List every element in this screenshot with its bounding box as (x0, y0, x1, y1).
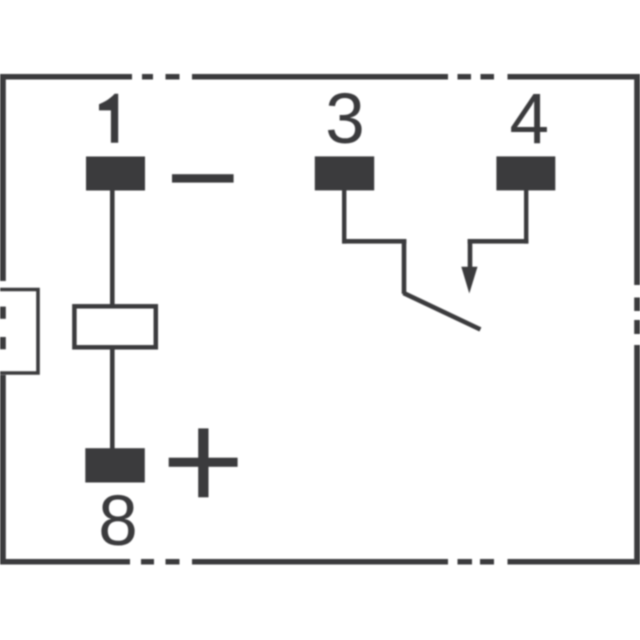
svg-text:8: 8 (98, 482, 138, 561)
svg-text:4: 4 (510, 80, 550, 159)
svg-text:3: 3 (325, 80, 365, 159)
